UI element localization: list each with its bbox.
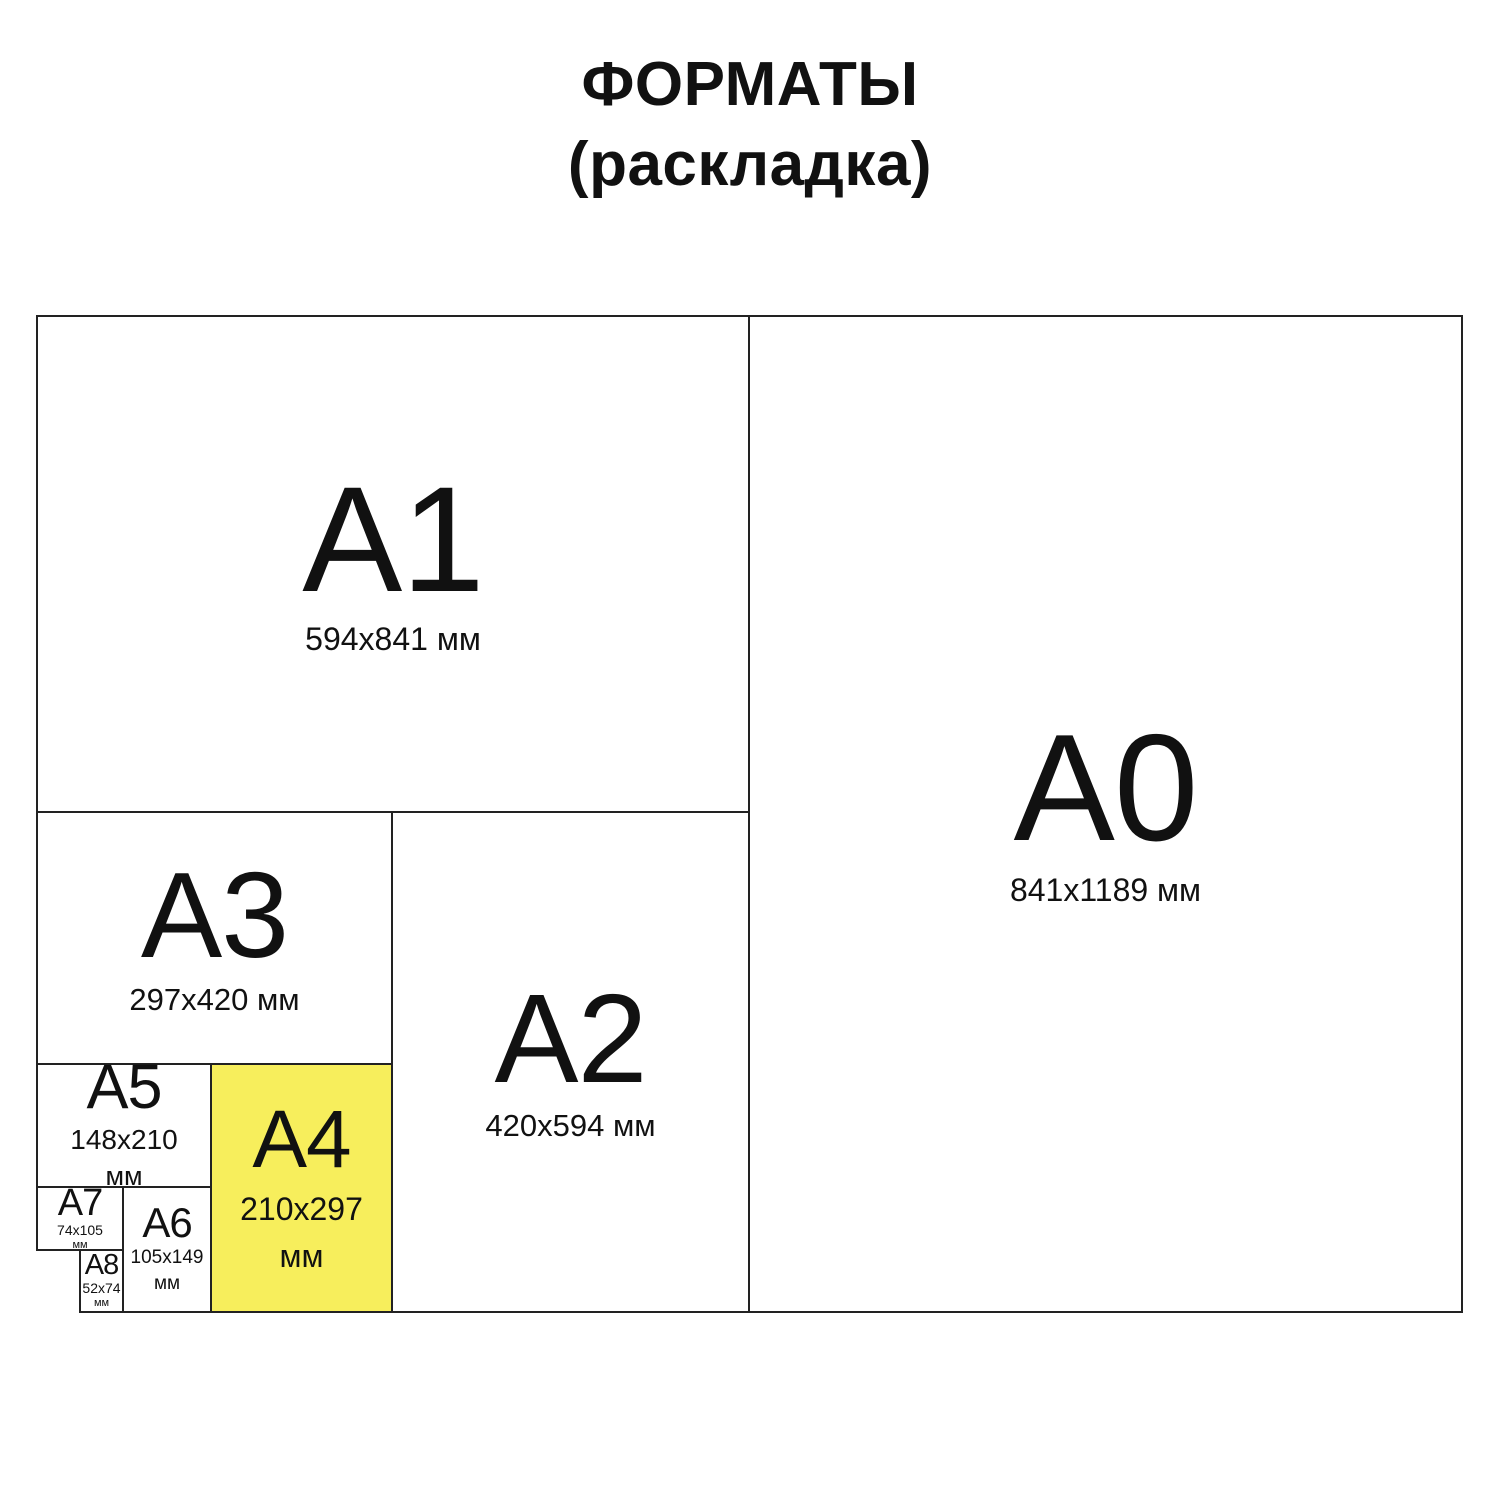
format-box-a4: A4 210x297 мм (212, 1065, 393, 1313)
format-dimensions-a0: 841x1189 мм (1010, 873, 1201, 908)
format-dimensions-a7: 74x105 (57, 1223, 103, 1238)
format-label-a1: A1 (302, 470, 483, 608)
format-box-a6: A6 105x149 мм (124, 1188, 212, 1313)
format-dimensions-a5: 148x210 (70, 1125, 177, 1156)
paper-formats-diagram: ФОРМАТЫ (раскладка) A1 594x841 мм A0 841… (0, 0, 1500, 1500)
format-box-a7: A7 74x105 мм (36, 1188, 124, 1251)
format-dimensions-a3: 297x420 мм (129, 983, 299, 1017)
format-label-a4: A4 (252, 1102, 350, 1177)
format-box-a0: A0 841x1189 мм (750, 315, 1463, 1313)
format-label-a0: A0 (1014, 719, 1198, 859)
diagram-title: ФОРМАТЫ (раскладка) (0, 45, 1500, 205)
format-dimensions-a4: 210x297 (240, 1192, 363, 1227)
diagram-title-line2: (раскладка) (0, 125, 1500, 205)
format-label-a7: A7 (58, 1186, 102, 1221)
format-box-a1: A1 594x841 мм (36, 315, 750, 813)
format-box-a3: A3 297x420 мм (36, 813, 393, 1065)
format-unit-a6: мм (154, 1274, 180, 1295)
format-dimensions-a2: 420x594 мм (485, 1109, 655, 1143)
format-dimensions-a8: 52x74 (82, 1281, 120, 1296)
format-unit-a4: мм (280, 1239, 324, 1274)
format-label-a2: A2 (494, 981, 646, 1097)
format-box-a8: A8 52x74 мм (79, 1251, 124, 1313)
format-unit-a8: мм (94, 1297, 109, 1309)
format-label-a6: A6 (142, 1204, 191, 1243)
format-box-a2: A2 420x594 мм (393, 813, 750, 1313)
format-label-a8: A8 (85, 1252, 118, 1279)
diagram-title-line1: ФОРМАТЫ (0, 45, 1500, 125)
format-box-a5: A5 148x210 мм (36, 1065, 212, 1188)
format-dimensions-a6: 105x149 (131, 1248, 204, 1269)
format-label-a5: A5 (86, 1059, 161, 1117)
format-label-a3: A3 (141, 859, 288, 971)
format-dimensions-a1: 594x841 мм (305, 622, 481, 657)
